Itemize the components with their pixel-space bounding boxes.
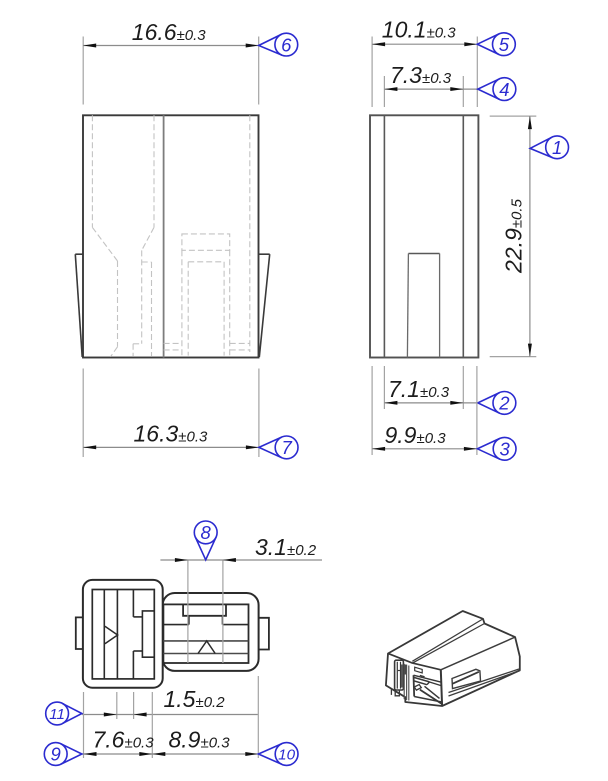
svg-text:5: 5 (499, 34, 510, 55)
svg-text:4: 4 (499, 79, 509, 100)
svg-text:7: 7 (281, 437, 292, 458)
svg-text:3: 3 (499, 439, 510, 460)
svg-text:10: 10 (278, 747, 295, 764)
svg-text:2: 2 (498, 393, 510, 414)
svg-text:6: 6 (281, 34, 292, 55)
svg-text:9: 9 (51, 744, 61, 765)
svg-text:1: 1 (552, 137, 562, 158)
svg-text:8: 8 (201, 522, 212, 543)
svg-text:11: 11 (49, 706, 65, 723)
